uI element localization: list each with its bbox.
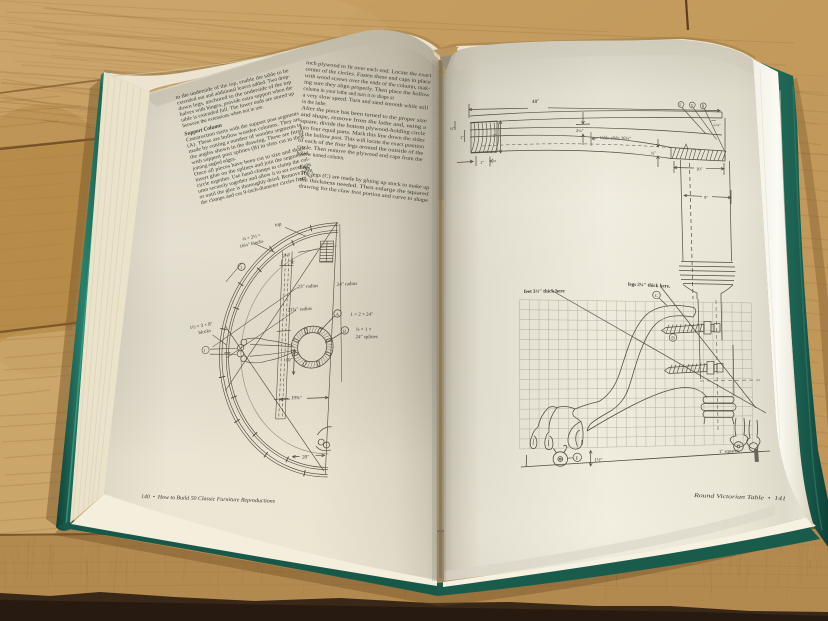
svg-text:20″: 20″ <box>302 454 310 460</box>
svg-text:E: E <box>576 456 579 461</box>
svg-text:9″: 9″ <box>704 195 708 200</box>
svg-text:1-¼″: 1-¼″ <box>713 123 721 128</box>
svg-text:3″: 3″ <box>493 133 497 138</box>
svg-text:1″ squares: 1″ squares <box>719 449 739 455</box>
svg-text:48″: 48″ <box>532 99 539 105</box>
svg-text:H: H <box>702 105 705 109</box>
svg-text:1″: 1″ <box>480 160 484 165</box>
svg-text:24″ splines: 24″ splines <box>355 335 377 340</box>
svg-text:feet 3½″ thick here: feet 3½″ thick here <box>524 289 566 295</box>
svg-text:10″: 10″ <box>696 167 703 172</box>
svg-text:¼ × 1 ×: ¼ × 1 × <box>356 328 372 333</box>
svg-text:C: C <box>655 293 658 298</box>
svg-text:1½″: 1½″ <box>595 459 603 464</box>
svg-text:G: G <box>691 104 694 108</box>
svg-text:¾″: ¾″ <box>651 151 656 156</box>
svg-text:19¾″: 19¾″ <box>291 396 302 401</box>
svg-text:1: 1 <box>240 265 242 270</box>
svg-text:2¼″: 2¼″ <box>576 128 584 133</box>
svg-text:10″: 10″ <box>285 358 292 363</box>
svg-text:1″: 1″ <box>460 135 464 140</box>
svg-text:¾″: ¾″ <box>450 126 455 131</box>
svg-text:B: B <box>343 329 346 334</box>
svg-text:F: F <box>679 103 681 107</box>
svg-text:¾″: ¾″ <box>290 259 296 265</box>
svg-text:1 × 2 × 24″: 1 × 2 × 24″ <box>350 313 373 318</box>
